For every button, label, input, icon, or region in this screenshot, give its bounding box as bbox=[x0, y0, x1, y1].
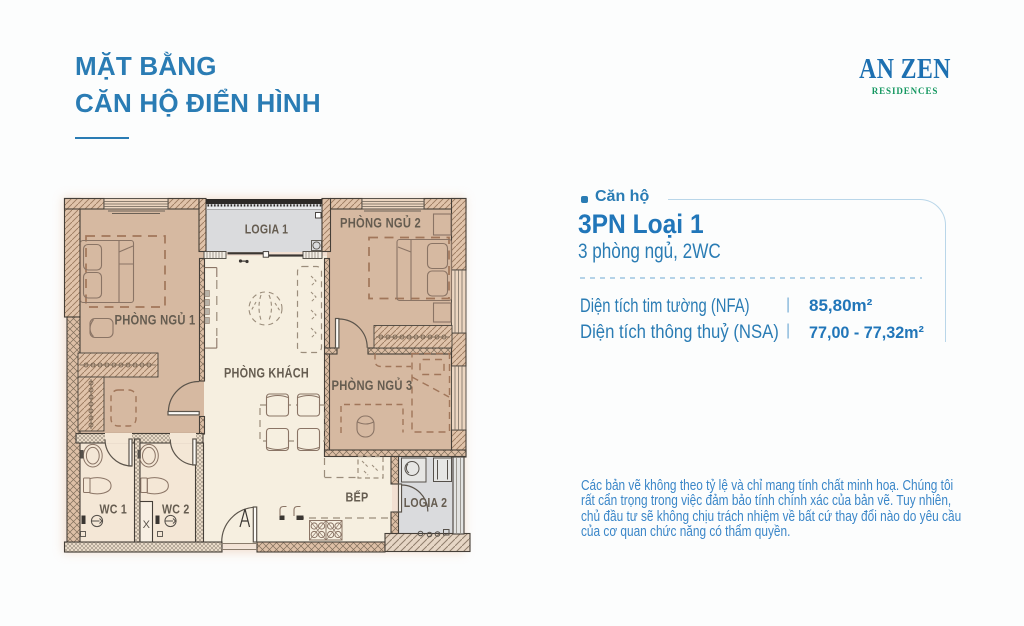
svg-text:LOGIA 2: LOGIA 2 bbox=[404, 495, 448, 510]
svg-text:LOGIA 1: LOGIA 1 bbox=[245, 222, 289, 237]
svg-text:PHÒNG NGỦ 1: PHÒNG NGỦ 1 bbox=[115, 313, 196, 328]
svg-text:WC 2: WC 2 bbox=[162, 502, 190, 517]
svg-text:PHÒNG NGỦ 3: PHÒNG NGỦ 3 bbox=[332, 378, 413, 393]
svg-text:WC 1: WC 1 bbox=[100, 502, 128, 517]
svg-text:PHÒNG KHÁCH: PHÒNG KHÁCH bbox=[224, 366, 309, 381]
svg-text:PHÒNG NGỦ 2: PHÒNG NGỦ 2 bbox=[340, 216, 421, 231]
svg-text:X: X bbox=[143, 519, 151, 531]
svg-text:BẾP: BẾP bbox=[346, 490, 369, 505]
